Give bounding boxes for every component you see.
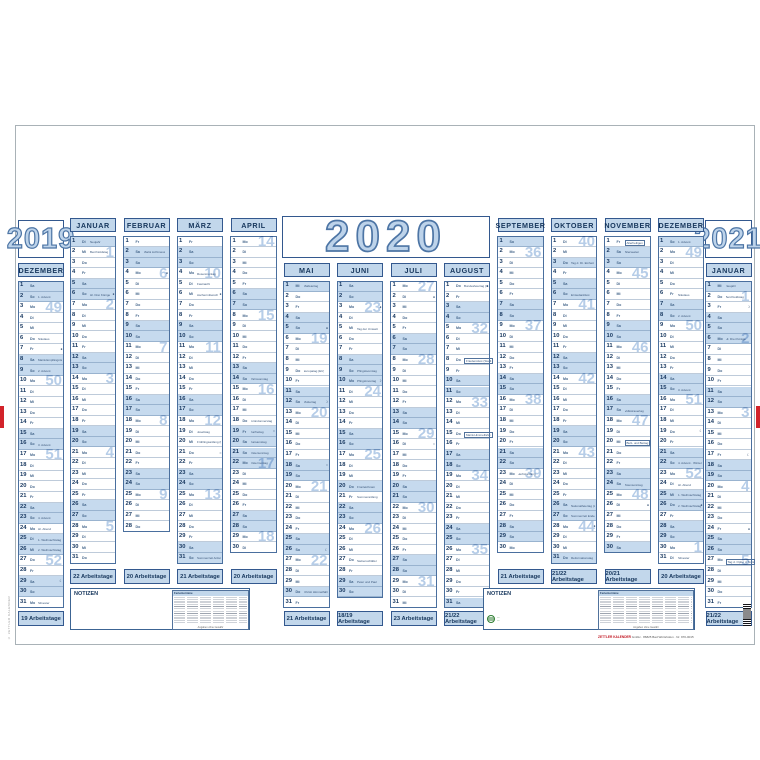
day-cell: 16Fr (444, 439, 490, 450)
day-number: 12 (553, 354, 559, 360)
day-cell: 7Mo (70, 300, 116, 311)
day-number: 4 (393, 314, 396, 320)
weekday-label: Mo (243, 240, 248, 244)
working-days-box: 18/19 Arbeitstage (337, 611, 383, 626)
day-number: 14 (393, 419, 399, 425)
day-cell: 31MoSilvester (18, 598, 64, 609)
weekday-label: Sa (82, 430, 86, 434)
day-number: 29 (500, 533, 506, 539)
day-number: 15 (286, 430, 292, 436)
weekday-label: Mi (718, 506, 722, 510)
day-cell: 1FrAllerheiligen (605, 237, 651, 248)
day-cell: 31Mi (391, 598, 437, 609)
day-cell: 17Fr (284, 450, 330, 461)
day-number: 8 (286, 356, 289, 362)
weekday-label: Mo (296, 337, 301, 341)
day-number: 1 (393, 282, 396, 288)
day-cell: 2Di (231, 247, 277, 258)
day-cell: 18Sa○ (284, 460, 330, 471)
day-number: 3 (233, 259, 236, 265)
weekday-label: Mo (617, 493, 622, 497)
weekday-label: Mi (718, 580, 722, 584)
day-number: 24 (339, 525, 345, 531)
day-cell: 16Do (706, 439, 752, 450)
weekday-label: Di (456, 337, 460, 341)
day-cell: 11Mi (498, 342, 544, 353)
weekday-label: Mi (349, 548, 353, 552)
weekday-label: Sa (349, 506, 353, 510)
day-number: 16 (20, 440, 26, 446)
weekday-label: Fr (456, 295, 460, 299)
day-cell: 19Mi (18, 471, 64, 482)
weekday-label: Do (189, 525, 194, 529)
weekday-label: So (510, 535, 515, 539)
day-number: 4 (446, 314, 449, 320)
weekday-label: So (403, 347, 408, 351)
day-number: 9 (286, 367, 289, 373)
holiday-label: Tag der Umwelt (357, 327, 378, 331)
day-number: 2 (708, 293, 711, 299)
day-number: 20 (607, 438, 613, 444)
day-cell: 18So (444, 460, 490, 471)
day-cell: 22So (498, 458, 544, 469)
day-cell: 8DoFriedensfest (Stadt Augsburg) (444, 355, 490, 366)
weekday-label: Di (456, 411, 460, 415)
weekday-label: Sa (617, 324, 621, 328)
weekday-label: Do (136, 525, 141, 529)
day-cell: 21Sa (498, 448, 544, 459)
day-cell: 5Di (605, 279, 651, 290)
weekday-label: Mo (349, 305, 354, 309)
day-cell: 2DoBerchtoldstag (706, 292, 752, 303)
day-cell: 14Do (124, 374, 170, 385)
day-number: 7 (233, 301, 236, 307)
day-cell: 8Mi (284, 355, 330, 366)
weekday-label: Fr (456, 516, 460, 520)
weekday-label: Mi (349, 326, 353, 330)
day-cell: 29SaPeter und Paul (337, 576, 383, 587)
weekday-label: Sa (30, 432, 34, 436)
weekday-label: Fr (349, 347, 353, 351)
weekday-label: Di (403, 442, 407, 446)
weekday-label: Mo (456, 548, 461, 552)
weekday-label: Do (670, 430, 675, 434)
day-cell: 23Sa (177, 469, 223, 480)
weekday-label: Fr (243, 356, 247, 360)
weekday-label: Mo (243, 387, 248, 391)
day-cell: 21Mo (70, 448, 116, 459)
day-number: 26 (500, 501, 506, 507)
weekday-label: Mi (617, 440, 621, 444)
ferientermine-title: Ferientermine (599, 591, 693, 596)
weekday-label: Di (82, 314, 86, 318)
day-number: 26 (286, 546, 292, 552)
day-cell: 5Sa (551, 279, 597, 290)
day-cell: 20Fr (658, 437, 704, 448)
weekday-label: Do (563, 261, 568, 265)
day-cell: 11Mo (605, 342, 651, 353)
weekday-label: Mi (349, 400, 353, 404)
day-number: 26 (179, 501, 185, 507)
day-cell: 20SaKarsamstag (231, 437, 277, 448)
day-cell: 21Do (605, 448, 651, 459)
day-cell: 7So (231, 300, 277, 311)
weekday-label: Mo (30, 453, 35, 457)
day-number: 18 (72, 417, 78, 423)
day-number: 20 (339, 483, 345, 489)
day-cell: 29Sa☾ (18, 576, 64, 587)
day-cell: 10So (124, 331, 170, 342)
weekday-label: Mi (718, 432, 722, 436)
day-cell: 1Mo (231, 237, 277, 248)
day-number: 15 (233, 385, 239, 391)
day-cell: 21Do (124, 448, 170, 459)
weekday-label: Mo (670, 324, 675, 328)
weekday-label: Do (670, 282, 675, 286)
weekday-label: Mo (243, 535, 248, 539)
day-number: 23 (393, 514, 399, 520)
day-number: 24 (446, 525, 452, 531)
day-cell: 20Do (18, 481, 64, 492)
day-cell: 10Mo (18, 376, 64, 387)
weekday-label: Do (82, 556, 87, 560)
weekday-label: Mi (670, 419, 674, 423)
day-number: 29 (286, 578, 292, 584)
weekday-label: So (349, 369, 354, 373)
day-number: 10 (20, 377, 26, 383)
day-cell: 5Sa (70, 279, 116, 290)
day-number: 5 (607, 280, 610, 286)
day-cell: 25Fr (551, 490, 597, 501)
day-number: 22 (233, 459, 239, 465)
day-cell: 4Do (391, 313, 437, 324)
weekday-label: Fr (296, 305, 300, 309)
day-cell: 19Fr (391, 471, 437, 482)
moon-phase-icon: ☾ (59, 579, 62, 583)
day-cell: 21Fr (18, 492, 64, 503)
weekday-label: Fr (82, 345, 86, 349)
weekday-label: Di (30, 316, 34, 320)
day-cell: 13Fr (658, 363, 704, 374)
day-number: 26 (126, 501, 132, 507)
weekday-label: Do (349, 558, 354, 562)
day-cell: 21So (391, 492, 437, 503)
day-number: 26 (446, 546, 452, 552)
holiday-label: Volkstrauertag (625, 409, 644, 413)
weekday-label: Mo (456, 474, 461, 478)
day-cell: 24So (124, 479, 170, 490)
day-number: 5 (339, 324, 342, 330)
weekday-label: Fr (296, 527, 300, 531)
day-cell: 28Sa (658, 521, 704, 532)
day-number: 18 (126, 417, 132, 423)
day-number: 7 (126, 301, 129, 307)
day-number: 14 (126, 375, 132, 381)
weekday-label: So (349, 442, 354, 446)
day-number: 29 (660, 533, 666, 539)
day-cell: 13Di (444, 408, 490, 419)
day-number: 10 (286, 377, 292, 383)
weekday-label: Mi (403, 379, 407, 383)
day-cell: 7Do (177, 300, 223, 311)
day-number: 25 (708, 535, 714, 541)
day-cell: 11Di (18, 387, 64, 398)
day-cell: 14Fr (337, 418, 383, 429)
day-number: 22 (20, 504, 26, 510)
day-cell: 21SoOstersonntag (231, 448, 277, 459)
red-edge-mark-left (0, 406, 4, 428)
day-number: 25 (286, 535, 292, 541)
weekday-label: Di (510, 408, 514, 412)
day-cell: 26Fr (231, 500, 277, 511)
day-number: 22 (708, 504, 714, 510)
weekday-label: Mi (617, 292, 621, 296)
day-number: 13 (553, 364, 559, 370)
day-cell: 15Di (551, 384, 597, 395)
day-cell: 4Mi (658, 268, 704, 279)
weekday-label: So (243, 303, 248, 307)
day-number: 29 (72, 533, 78, 539)
day-cell: 26Do2. Weihnachtstag● (658, 500, 704, 511)
day-number: 23 (708, 514, 714, 520)
day-number: 24 (72, 480, 78, 486)
day-cell: 4Do (231, 268, 277, 279)
moon-phase-icon: ● (433, 295, 435, 299)
weekday-label: Di (296, 421, 300, 425)
working-days-box: 23 Arbeitstage (391, 611, 437, 626)
day-number: 3 (708, 303, 711, 309)
weekday-label: Do (617, 451, 622, 455)
day-number: 11 (660, 343, 666, 349)
weekday-label: Mo (670, 472, 675, 476)
weekday-label: Do (136, 451, 141, 455)
day-cell: 22Fr (124, 458, 170, 469)
weekday-label: Fr (403, 548, 407, 552)
holiday-label: Neujahr (90, 240, 101, 244)
day-cell: 4Sa (284, 313, 330, 324)
weekday-label: Mi (670, 271, 674, 275)
weekday-label: Di (243, 546, 247, 550)
day-number: 13 (179, 364, 185, 370)
weekday-label: Fr (136, 387, 140, 391)
day-cell: 30DoChristi Himmelfahrt (284, 587, 330, 598)
day-cell: 20Mi (124, 437, 170, 448)
day-number: 12 (339, 398, 345, 404)
day-number: 13 (339, 409, 345, 415)
month-header: DEZEMBER (658, 218, 704, 232)
weekday-label: So (349, 516, 354, 520)
weekday-label: Sa (670, 377, 674, 381)
weekday-label: So (349, 590, 354, 594)
moon-phase-icon: ☾ (747, 453, 750, 457)
weekday-label: Di (510, 261, 514, 265)
day-cell: 13So (70, 363, 116, 374)
day-cell: 9Sa (124, 321, 170, 332)
weekday-label: So (243, 377, 248, 381)
day-number: 20 (72, 438, 78, 444)
day-cell: 21Sa (658, 448, 704, 459)
weekday-label: Di (30, 537, 34, 541)
day-number: 10 (179, 333, 185, 339)
month-header: APRIL (231, 218, 277, 232)
weekday-label: Mi (563, 398, 567, 402)
day-cell: 15Mo (391, 429, 437, 440)
day-cell: 1So1. Advent (658, 237, 704, 248)
ferientermine-rows (600, 597, 692, 625)
day-cell: 5DiFastnacht (177, 279, 223, 290)
weekday-label: So (718, 400, 723, 404)
day-cell: 19DiJosefstag (177, 426, 223, 437)
day-cell: 10Fr (706, 376, 752, 387)
day-number: 7 (553, 301, 556, 307)
weekday-label: Fr (617, 387, 621, 391)
moon-phase-icon: ● (486, 284, 488, 288)
day-number: 1 (72, 238, 75, 244)
weekday-label: Di (617, 503, 621, 507)
day-cell: 12Sa (551, 353, 597, 364)
day-cell: 14Do (177, 374, 223, 385)
day-number: 15 (126, 385, 132, 391)
day-cell: 19Mi (337, 471, 383, 482)
weekday-label: Mo (136, 345, 141, 349)
day-cell: 27Fr (658, 511, 704, 522)
day-number: 8 (233, 312, 236, 318)
day-cell: 18Sa (706, 460, 752, 471)
day-cell: 2Mo (498, 247, 544, 258)
weekday-label: Fr (456, 369, 460, 373)
day-cell: 8So (498, 310, 544, 321)
weekday-label: Do (243, 419, 248, 423)
day-cell: 6MoHl. Drei Könige (706, 334, 752, 345)
day-number: 9 (179, 322, 182, 328)
day-number: 8 (339, 356, 342, 362)
weekday-label: So (30, 442, 35, 446)
weekday-label: Di (82, 240, 86, 244)
day-cell: 30Mi (551, 542, 597, 553)
day-number: 22 (607, 459, 613, 465)
day-cell: 21Di (284, 492, 330, 503)
day-number: 28 (607, 523, 613, 529)
weekday-label: So (30, 590, 35, 594)
weekday-label: Do (349, 337, 354, 341)
weekday-label: Mi (456, 421, 460, 425)
day-number: 12 (393, 398, 399, 404)
weekday-label: Mi (296, 432, 300, 436)
weekday-label: Di (243, 250, 247, 254)
day-cell: 4Di (18, 313, 64, 324)
day-number: 26 (20, 546, 26, 552)
day-number: 24 (500, 480, 506, 486)
day-cell: 22Do (444, 503, 490, 514)
weekday-label: Di (510, 482, 514, 486)
weekday-label: So (718, 474, 723, 478)
day-cell: 6Mi (124, 289, 170, 300)
day-cell: 21Mi (444, 492, 490, 503)
day-number: 6 (660, 290, 663, 296)
weekday-label: So (136, 261, 141, 265)
weekday-label: Fr (403, 474, 407, 478)
weekday-label: Fr (456, 590, 460, 594)
day-number: 8 (72, 312, 75, 318)
day-number: 31 (660, 554, 666, 560)
day-number: 6 (286, 335, 289, 341)
day-number: 26 (339, 546, 345, 552)
weekday-label: Sa (718, 464, 722, 468)
weekday-label: Mo (189, 493, 194, 497)
day-cell: 21Mo (551, 448, 597, 459)
day-cell: 9Di (231, 321, 277, 332)
day-cell: 12SoMuttertag☽ (284, 397, 330, 408)
day-number: 17 (339, 451, 345, 457)
day-number: 22 (179, 459, 185, 465)
day-cell: 10Fr (284, 376, 330, 387)
day-cell: 23So4. Advent (18, 513, 64, 524)
weekday-label: Sa (563, 356, 567, 360)
weekday-label: Do (30, 558, 35, 562)
day-number: 18 (446, 462, 452, 468)
day-cell: 23Sa (605, 469, 651, 480)
day-number: 28 (179, 523, 185, 529)
day-number: 20 (126, 438, 132, 444)
day-cell: 4Mo (605, 268, 651, 279)
day-number: 15 (660, 385, 666, 391)
day-cell: 3Di (658, 258, 704, 269)
weekday-label: Sa (349, 580, 353, 584)
day-number: 23 (553, 470, 559, 476)
day-cell: 17Di (658, 405, 704, 416)
day-number: 24 (179, 480, 185, 486)
day-cell: 7Do (124, 300, 170, 311)
day-cell: 6Mo (284, 334, 330, 345)
day-cell: 15So (498, 384, 544, 395)
day-cell: 4Fr (70, 268, 116, 279)
weekday-label: So (82, 366, 87, 370)
day-cell: 10Do (551, 331, 597, 342)
day-cell: 7So (391, 344, 437, 355)
weekday-label: So (403, 495, 408, 499)
notizen-box-right: NOTIZEN Ferientermine Angaben ohne Gewäh… (483, 588, 695, 630)
weekday-label: Do (510, 430, 515, 434)
weekday-label: Mo (136, 419, 141, 423)
day-cell: 7Di (706, 344, 752, 355)
weekday-label: Di (82, 535, 86, 539)
day-number: 19 (233, 428, 239, 434)
day-number: 20 (708, 483, 714, 489)
weekday-label: Di (563, 314, 567, 318)
day-cell: 12Mi (337, 397, 383, 408)
working-days-box: 20 Arbeitstage (658, 569, 704, 584)
day-cell: 8Di (551, 310, 597, 321)
day-cell: 18Mi (658, 416, 704, 427)
weekday-label: Sa (563, 430, 567, 434)
day-number: 30 (20, 588, 26, 594)
day-number: 28 (339, 567, 345, 573)
weekday-label: Di (349, 537, 353, 541)
day-cell: 1Fr (124, 237, 170, 248)
day-cell: 30Di (231, 542, 277, 553)
day-number: 30 (500, 544, 506, 550)
weekday-label: Fr (718, 305, 722, 309)
day-number: 3 (126, 259, 129, 265)
day-number: 16 (72, 396, 78, 402)
day-cell: 27Mi (605, 511, 651, 522)
weekday-label: Mo (510, 398, 515, 402)
day-number: 4 (20, 314, 23, 320)
weekday-label: Mo (718, 558, 723, 562)
day-cell: 18Di (337, 460, 383, 471)
day-number: 16 (286, 440, 292, 446)
holiday-label: Rosenmontag (197, 272, 216, 276)
